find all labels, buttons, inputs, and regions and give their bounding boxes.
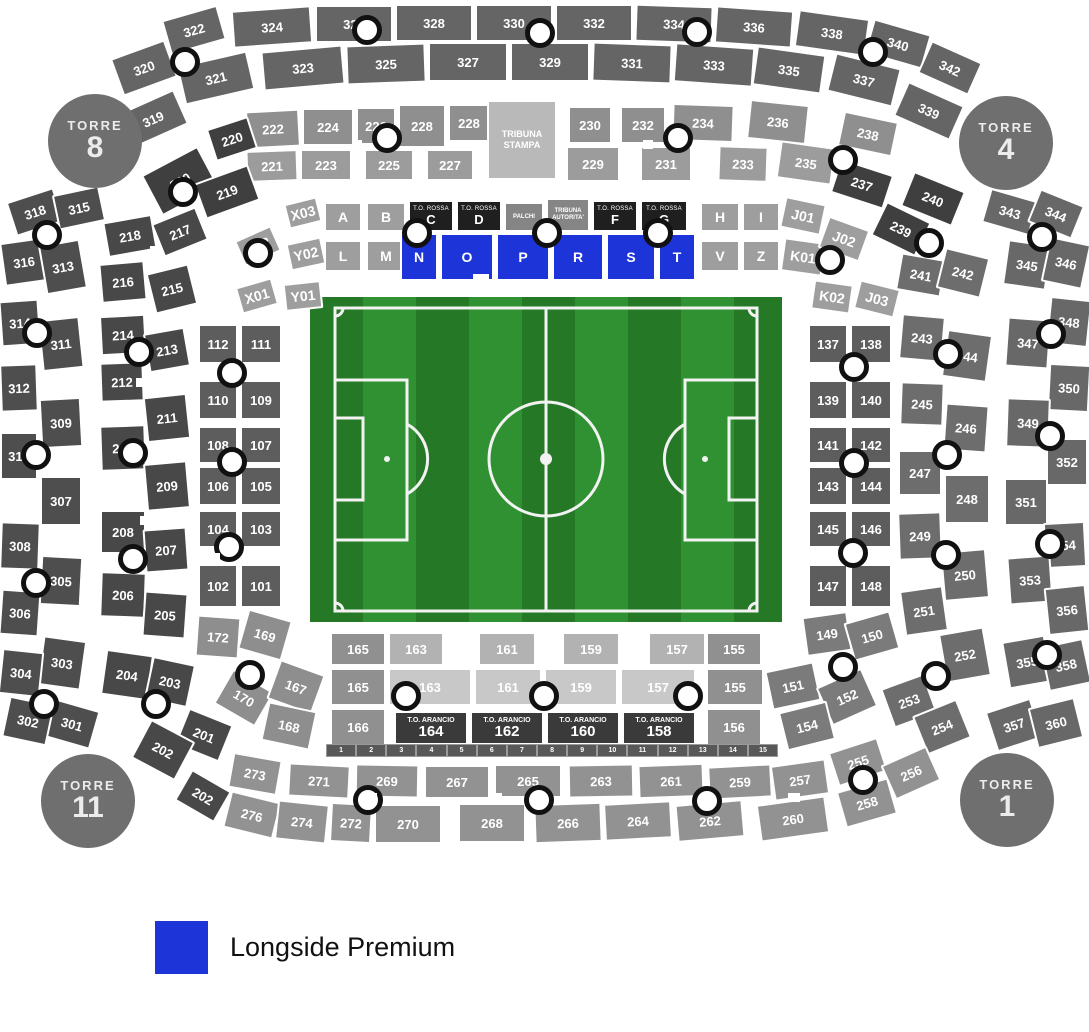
section-label: 172 — [207, 630, 230, 644]
section-202[interactable]: 202 — [174, 769, 232, 823]
row-number: 6 — [477, 744, 507, 757]
section-label: 145 — [817, 523, 839, 536]
section-233[interactable]: 233 — [717, 145, 768, 183]
seat-view-marker[interactable] — [692, 786, 722, 816]
section-248[interactable]: 248 — [944, 474, 990, 524]
section-TO-ARANCIO-160[interactable]: T.O. ARANCIO160 — [546, 711, 620, 745]
section-label: 141 — [817, 439, 839, 452]
seat-view-marker[interactable] — [170, 47, 200, 77]
section-label: 221 — [261, 159, 283, 173]
row-number: 7 — [507, 744, 537, 757]
tower-badge-8: TORRE8 — [48, 94, 142, 188]
seat-view-marker[interactable] — [21, 440, 51, 470]
section-236[interactable]: 236 — [746, 99, 810, 145]
section-label: 137 — [817, 338, 839, 351]
section-label: 223 — [315, 159, 337, 172]
section-label: A — [338, 210, 348, 224]
section-label: 338 — [820, 25, 843, 41]
section-label: I — [759, 210, 763, 224]
section-216[interactable]: 216 — [98, 260, 147, 304]
section-328[interactable]: 328 — [395, 4, 473, 42]
seat-view-marker[interactable] — [1035, 529, 1065, 559]
section-159[interactable]: 159 — [562, 632, 620, 666]
section-label: 351 — [1015, 496, 1037, 509]
section-232[interactable]: 232 — [620, 106, 666, 144]
section-L[interactable]: L — [324, 240, 362, 272]
section-169[interactable]: 169 — [237, 608, 293, 661]
section-Y01[interactable]: Y01 — [283, 280, 324, 312]
section-label: 220 — [220, 129, 245, 148]
section-335[interactable]: 335 — [752, 45, 827, 94]
section-245[interactable]: 245 — [899, 381, 945, 427]
gap-marker — [473, 274, 489, 284]
seat-view-marker[interactable] — [848, 765, 878, 795]
section-label: 320 — [132, 58, 157, 78]
section-label: 168 — [277, 717, 301, 734]
section-label: 259 — [729, 775, 751, 789]
section-165[interactable]: 165 — [330, 632, 386, 666]
section-label: 245 — [911, 397, 933, 411]
seat-view-marker[interactable] — [217, 447, 247, 477]
section-label: L — [339, 249, 348, 263]
section-label: 276 — [240, 806, 264, 824]
tower-number: 11 — [72, 791, 104, 825]
section-163[interactable]: 163 — [388, 632, 444, 666]
section-325[interactable]: 325 — [345, 43, 426, 86]
section-225[interactable]: 225 — [364, 149, 414, 181]
section-224[interactable]: 224 — [302, 108, 354, 146]
section-329[interactable]: 329 — [510, 42, 590, 82]
section-228[interactable]: 228 — [398, 104, 446, 148]
section-label: 264 — [627, 814, 649, 828]
section-label: 315 — [67, 199, 91, 216]
section-342[interactable]: 342 — [917, 40, 983, 96]
section-label: 150 — [860, 627, 884, 645]
section-label: 335 — [777, 62, 800, 78]
section-label: 339 — [916, 101, 941, 122]
section-label: 165 — [347, 681, 369, 694]
section-label: K01 — [789, 248, 816, 265]
section-label: 143 — [817, 480, 839, 493]
legend-label: Longside Premium — [230, 932, 455, 963]
section-323[interactable]: 323 — [260, 45, 345, 92]
section-label: 152 — [834, 687, 859, 708]
section-102[interactable]: 102 — [198, 564, 238, 608]
section-172[interactable]: 172 — [195, 615, 242, 660]
section-label: 240 — [920, 189, 945, 209]
section-label: 159 — [580, 643, 602, 656]
section-label: 344 — [1043, 204, 1068, 224]
section-label: 224 — [317, 121, 339, 134]
seat-view-marker[interactable] — [243, 238, 273, 268]
seat-view-marker[interactable] — [1036, 319, 1066, 349]
section-label: 201 — [191, 725, 216, 745]
section-label: J01 — [790, 207, 816, 226]
seat-view-marker[interactable] — [525, 18, 555, 48]
section-label: P — [518, 250, 527, 264]
section-label: 243 — [911, 331, 934, 346]
section-360[interactable]: 360 — [1028, 697, 1085, 749]
seat-view-marker[interactable] — [32, 220, 62, 250]
seat-view-marker[interactable] — [828, 145, 858, 175]
section-label: 156 — [723, 721, 745, 734]
row-number-strip: 123456789101112131415 — [326, 744, 778, 757]
section-267[interactable]: 267 — [424, 765, 490, 799]
row-number: 14 — [718, 744, 748, 757]
section-336[interactable]: 336 — [714, 5, 794, 48]
section-165[interactable]: 165 — [330, 668, 386, 706]
section-A[interactable]: A — [324, 202, 362, 232]
section-label: 163 — [419, 681, 441, 694]
section-223[interactable]: 223 — [300, 149, 352, 181]
section-F[interactable]: T.O. ROSSAF — [592, 200, 638, 232]
section-label: 336 — [743, 20, 766, 34]
section-label: 103 — [250, 523, 272, 536]
section-274[interactable]: 274 — [274, 799, 330, 844]
seat-view-marker[interactable] — [1027, 222, 1057, 252]
section-303[interactable]: 303 — [37, 635, 88, 691]
section-label: 331 — [621, 56, 643, 70]
section-147[interactable]: 147 — [808, 564, 848, 608]
section-label: 316 — [12, 254, 35, 270]
section-230[interactable]: 230 — [568, 106, 612, 144]
section-271[interactable]: 271 — [287, 762, 351, 799]
seat-view-marker[interactable] — [168, 177, 198, 207]
section-label: 267 — [446, 776, 468, 789]
section-label: 217 — [167, 222, 192, 242]
section-320[interactable]: 320 — [110, 39, 178, 96]
section-label: J03 — [864, 289, 890, 308]
section-TO-ARANCIO-158[interactable]: T.O. ARANCIO158 — [622, 711, 696, 745]
section-228[interactable]: 228 — [448, 104, 490, 142]
section-166[interactable]: 166 — [330, 708, 386, 746]
section-label: M — [380, 249, 392, 263]
section-TO-ARANCIO-162[interactable]: T.O. ARANCIO162 — [470, 711, 544, 745]
section-154[interactable]: 154 — [778, 701, 836, 752]
seat-view-marker[interactable] — [1032, 640, 1062, 670]
section-221[interactable]: 221 — [245, 149, 298, 183]
section-Z[interactable]: Z — [742, 240, 780, 272]
section-label: 161 — [496, 643, 518, 656]
section-label: 218 — [118, 228, 142, 245]
section-D[interactable]: T.O. ROSSAD — [456, 200, 502, 232]
section-242[interactable]: 242 — [936, 247, 991, 299]
section-label: 313 — [51, 259, 75, 276]
section-V[interactable]: V — [700, 240, 740, 272]
section-label: 360 — [1044, 714, 1068, 732]
section-140[interactable]: 140 — [850, 380, 892, 420]
section-label: 110 — [208, 394, 229, 407]
section-label: 332 — [583, 17, 605, 30]
section-332[interactable]: 332 — [555, 4, 633, 42]
seat-view-marker[interactable] — [118, 438, 148, 468]
section-label: 225 — [378, 159, 400, 172]
section-K02[interactable]: K02 — [810, 279, 854, 314]
section-label: X01 — [243, 286, 271, 306]
section-label: 101 — [250, 580, 272, 593]
row-number: 15 — [748, 744, 778, 757]
seat-view-marker[interactable] — [235, 660, 265, 690]
seat-view-marker[interactable] — [1035, 421, 1065, 451]
seat-view-marker[interactable] — [141, 689, 171, 719]
seat-view-marker[interactable] — [682, 17, 712, 47]
section-label: 165 — [347, 643, 369, 656]
row-number: 9 — [567, 744, 597, 757]
section-X01[interactable]: X01 — [235, 277, 279, 314]
section-label: 138 — [860, 338, 882, 351]
section-264[interactable]: 264 — [603, 800, 673, 842]
section-149[interactable]: 149 — [801, 611, 852, 657]
section-label: V — [715, 249, 724, 263]
section-211[interactable]: 211 — [143, 393, 192, 443]
section-label: 155 — [724, 681, 746, 694]
section-324[interactable]: 324 — [231, 5, 313, 48]
section-label: 213 — [155, 342, 179, 359]
section-Y02[interactable]: Y02 — [285, 237, 326, 272]
seat-view-marker[interactable] — [815, 245, 845, 275]
gap-marker — [930, 430, 940, 439]
section-label: 149 — [815, 626, 838, 642]
section-label: 202 — [150, 739, 175, 761]
section-label: 308 — [9, 539, 31, 553]
section-label: H — [715, 210, 725, 224]
seat-view-marker[interactable] — [21, 568, 51, 598]
section-label: 157 — [647, 681, 669, 694]
section-label: Y02 — [292, 245, 319, 264]
gap-marker — [788, 793, 800, 802]
section-label: 167 — [284, 677, 309, 697]
section-label: 163 — [405, 643, 427, 656]
seat-view-marker[interactable] — [524, 785, 554, 815]
section-327[interactable]: 327 — [428, 42, 508, 82]
section-J01[interactable]: J01 — [779, 196, 827, 236]
section-155[interactable]: 155 — [706, 668, 764, 706]
seat-view-marker[interactable] — [402, 218, 432, 248]
gap-marker — [365, 793, 377, 802]
section-307[interactable]: 307 — [40, 476, 82, 526]
section-label: 260 — [781, 811, 804, 827]
legend: Longside Premium — [155, 921, 455, 974]
seat-view-marker[interactable] — [29, 689, 59, 719]
seat-view-marker[interactable] — [22, 318, 52, 348]
section-206[interactable]: 206 — [99, 571, 147, 619]
row-number: 3 — [386, 744, 416, 757]
section-label: 203 — [158, 673, 182, 690]
seat-view-marker[interactable] — [838, 538, 868, 568]
section-label: 263 — [590, 774, 612, 787]
seat-view-marker[interactable] — [839, 352, 869, 382]
section-157[interactable]: 157 — [648, 632, 706, 666]
seat-view-marker[interactable] — [828, 652, 858, 682]
seat-view-marker[interactable] — [529, 681, 559, 711]
section-label: 170 — [231, 687, 256, 709]
section-148[interactable]: 148 — [850, 564, 892, 608]
section-label: 345 — [1015, 257, 1038, 273]
section-260[interactable]: 260 — [756, 795, 831, 842]
section-I[interactable]: I — [742, 202, 780, 232]
section-273[interactable]: 273 — [227, 752, 282, 796]
seat-view-marker[interactable] — [372, 123, 402, 153]
section-label: 139 — [817, 394, 839, 407]
section-270[interactable]: 270 — [374, 804, 442, 844]
section-label: 105 — [250, 480, 272, 493]
section-276[interactable]: 276 — [222, 790, 282, 839]
section-label: 106 — [207, 480, 229, 493]
seat-view-marker[interactable] — [858, 37, 888, 67]
section-209[interactable]: 209 — [143, 460, 191, 512]
section-309[interactable]: 309 — [39, 397, 84, 449]
seat-view-marker[interactable] — [643, 218, 673, 248]
section-227[interactable]: 227 — [426, 149, 474, 181]
section-315[interactable]: 315 — [52, 185, 106, 230]
row-number: 5 — [447, 744, 477, 757]
section-label: 157 — [666, 643, 688, 656]
section-label: 206 — [112, 588, 134, 602]
section-331[interactable]: 331 — [591, 42, 672, 85]
section-label: 164 — [418, 724, 443, 739]
section-label: 216 — [112, 275, 135, 290]
section-label: 208 — [112, 526, 134, 539]
gap-marker — [868, 553, 880, 563]
section-label: 343 — [998, 203, 1022, 221]
section-label: 227 — [439, 159, 461, 172]
section-label: N — [414, 250, 424, 264]
section-215[interactable]: 215 — [146, 263, 199, 314]
section-109[interactable]: 109 — [240, 380, 282, 420]
row-number: 4 — [416, 744, 446, 757]
seat-view-marker[interactable] — [839, 448, 869, 478]
stadium-map: Longside Premium 32232432632833033233433… — [0, 0, 1089, 1032]
seat-view-marker[interactable] — [124, 337, 154, 367]
section-label: PALCHI — [513, 214, 535, 221]
section-label: 140 — [860, 394, 882, 407]
section-label: 207 — [155, 543, 178, 557]
seat-view-marker[interactable] — [663, 123, 693, 153]
seat-view-marker[interactable] — [217, 358, 247, 388]
seat-view-marker[interactable] — [914, 228, 944, 258]
section-label: 251 — [912, 603, 935, 619]
section-label: 233 — [732, 157, 754, 171]
section-label: 269 — [376, 774, 398, 787]
section-label: 323 — [292, 61, 315, 76]
section-label: 325 — [375, 57, 397, 71]
section-label: 350 — [1058, 381, 1080, 395]
section-H[interactable]: H — [700, 202, 740, 232]
section-label: 219 — [215, 182, 240, 202]
section-label: 311 — [50, 336, 72, 351]
section-139[interactable]: 139 — [808, 380, 848, 420]
section-TRIBUNA-STAMPA[interactable]: TRIBUNA STAMPA — [487, 100, 557, 180]
section-111[interactable]: 111 — [240, 324, 282, 364]
section-263[interactable]: 263 — [568, 763, 635, 798]
section-label: 306 — [9, 606, 32, 620]
section-251[interactable]: 251 — [899, 585, 949, 637]
section-308[interactable]: 308 — [0, 521, 41, 570]
section-155[interactable]: 155 — [706, 632, 762, 666]
section-label: 146 — [860, 523, 882, 536]
section-label: 248 — [956, 493, 978, 506]
section-label: 266 — [557, 816, 579, 830]
tower-badge-4: TORRE4 — [959, 96, 1053, 190]
seat-view-marker[interactable] — [933, 339, 963, 369]
section-label: 236 — [767, 114, 790, 129]
seat-view-marker[interactable] — [391, 681, 421, 711]
section-356[interactable]: 356 — [1044, 584, 1089, 636]
seat-view-marker[interactable] — [673, 681, 703, 711]
gap-marker — [150, 246, 160, 255]
section-label: 230 — [579, 119, 601, 132]
seat-view-marker[interactable] — [352, 15, 382, 45]
section-229[interactable]: 229 — [566, 146, 620, 182]
gap-marker — [136, 378, 146, 387]
section-322[interactable]: 322 — [161, 5, 227, 56]
seat-view-marker[interactable] — [931, 540, 961, 570]
section-label: 301 — [60, 715, 84, 733]
section-label: 169 — [253, 626, 277, 644]
section-J03[interactable]: J03 — [853, 279, 901, 318]
row-number: 8 — [537, 744, 567, 757]
section-label: 356 — [1056, 602, 1079, 617]
section-label: 229 — [582, 158, 604, 171]
section-label: 144 — [860, 480, 882, 493]
section-label: 346 — [1054, 254, 1078, 271]
section-207[interactable]: 207 — [143, 527, 190, 574]
section-label: 329 — [539, 56, 561, 69]
tower-number: 1 — [999, 790, 1016, 824]
seat-view-marker[interactable] — [532, 218, 562, 248]
section-label: K02 — [818, 288, 845, 305]
section-B[interactable]: B — [366, 202, 406, 232]
section-label: 330 — [503, 17, 525, 30]
section-label: 327 — [457, 56, 479, 69]
section-103[interactable]: 103 — [240, 510, 282, 548]
section-312[interactable]: 312 — [0, 363, 39, 412]
tower-badge-1: TORRE1 — [960, 753, 1054, 847]
section-333[interactable]: 333 — [673, 42, 756, 87]
gap-marker — [208, 553, 220, 563]
section-label: 303 — [50, 655, 73, 671]
section-label: 272 — [340, 816, 362, 830]
section-101[interactable]: 101 — [240, 564, 282, 608]
section-label: 232 — [632, 119, 654, 132]
seat-view-marker[interactable] — [932, 440, 962, 470]
section-label: 209 — [156, 479, 179, 494]
section-label: Z — [757, 249, 766, 263]
section-label: 142 — [860, 439, 882, 452]
section-label: 349 — [1017, 416, 1039, 430]
section-label: 234 — [692, 116, 714, 130]
section-351[interactable]: 351 — [1004, 478, 1048, 526]
section-label: 231 — [655, 158, 677, 171]
seat-view-marker[interactable] — [118, 544, 148, 574]
section-label: 205 — [154, 608, 177, 622]
section-235[interactable]: 235 — [776, 140, 837, 185]
section-205[interactable]: 205 — [141, 591, 188, 640]
section-label: 107 — [250, 439, 272, 452]
section-156[interactable]: 156 — [706, 708, 762, 746]
section-X03[interactable]: X03 — [283, 196, 322, 229]
section-105[interactable]: 105 — [240, 466, 282, 506]
section-161[interactable]: 161 — [478, 632, 536, 666]
section-TO-ARANCIO-164[interactable]: T.O. ARANCIO164 — [394, 711, 468, 745]
section-label: 322 — [182, 21, 206, 39]
seat-view-marker[interactable] — [921, 661, 951, 691]
section-350[interactable]: 350 — [1047, 363, 1089, 413]
section-label: 268 — [481, 817, 503, 830]
tower-number: 4 — [998, 133, 1015, 167]
section-268[interactable]: 268 — [458, 803, 526, 843]
section-label: 252 — [953, 647, 977, 664]
